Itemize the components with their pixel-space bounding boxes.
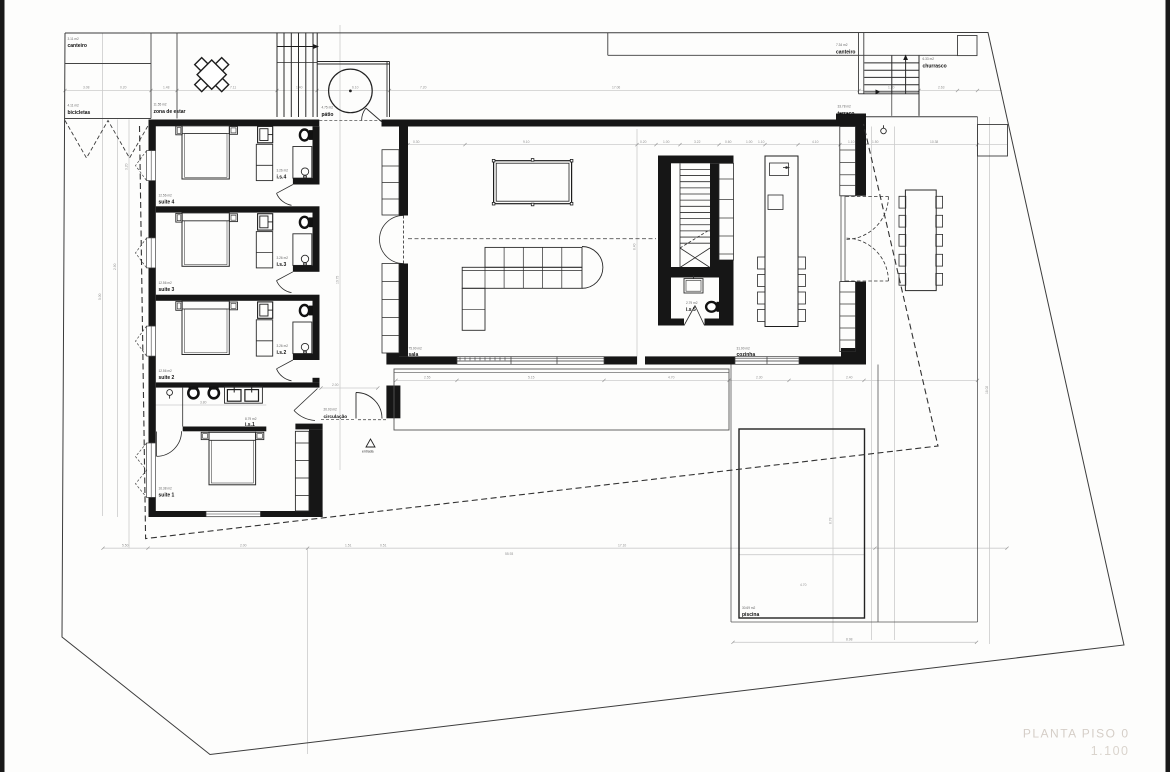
svg-text:terraço: terraço	[838, 111, 855, 117]
svg-text:16.38 m2: 16.38 m2	[159, 487, 173, 491]
svg-text:4.70: 4.70	[800, 583, 807, 587]
svg-text:7.11: 7.11	[230, 86, 236, 90]
svg-text:3.22: 3.22	[694, 140, 701, 144]
svg-text:8.79 m2: 8.79 m2	[245, 417, 257, 421]
svg-text:18.02: 18.02	[985, 386, 989, 394]
svg-text:i.s.1: i.s.1	[245, 422, 255, 428]
svg-text:suite 2: suite 2	[159, 375, 175, 381]
svg-text:canteiro: canteiro	[836, 49, 855, 55]
svg-text:2.55: 2.55	[424, 376, 431, 380]
svg-text:2.79 m2: 2.79 m2	[686, 301, 698, 305]
svg-text:17.06: 17.06	[612, 86, 620, 90]
svg-text:6.33 m2: 6.33 m2	[923, 57, 935, 61]
svg-text:canteiro: canteiro	[68, 43, 87, 49]
svg-text:7.34 m2: 7.34 m2	[836, 43, 848, 47]
svg-text:bicicletas: bicicletas	[68, 110, 91, 116]
svg-text:4.70: 4.70	[668, 376, 675, 380]
svg-text:i.s.2: i.s.2	[277, 350, 287, 356]
svg-text:4.10: 4.10	[812, 140, 819, 144]
svg-text:3.80: 3.80	[200, 400, 207, 404]
svg-text:2.40: 2.40	[846, 376, 853, 380]
svg-text:zona de estar: zona de estar	[154, 109, 186, 115]
svg-text:31.00 m2: 31.00 m2	[737, 346, 751, 350]
svg-text:2.63: 2.63	[938, 86, 945, 90]
svg-text:1.10: 1.10	[758, 140, 765, 144]
svg-text:0.20: 0.20	[640, 140, 647, 144]
svg-text:0.60: 0.60	[725, 140, 732, 144]
svg-text:0.51: 0.51	[380, 544, 387, 548]
svg-text:3.11 m2: 3.11 m2	[68, 37, 80, 41]
svg-text:12.56 m2: 12.56 m2	[159, 281, 173, 285]
svg-text:8.78: 8.78	[828, 517, 832, 524]
svg-text:1.10: 1.10	[848, 140, 855, 144]
svg-text:12.56 m2: 12.56 m2	[159, 369, 173, 373]
svg-text:sala: sala	[409, 352, 419, 358]
svg-text:2.90: 2.90	[113, 263, 117, 270]
svg-text:suite 4: suite 4	[159, 200, 175, 206]
svg-text:30.69 m2: 30.69 m2	[742, 606, 756, 610]
svg-text:cozinha: cozinha	[737, 352, 756, 358]
svg-text:1.100: 1.100	[1091, 744, 1130, 758]
svg-text:5.00: 5.00	[98, 293, 102, 300]
svg-text:7.20: 7.20	[420, 86, 427, 90]
svg-text:10.38: 10.38	[930, 140, 938, 144]
svg-text:3.26 m2: 3.26 m2	[277, 344, 289, 348]
svg-text:9.10: 9.10	[523, 140, 530, 144]
svg-text:1.50: 1.50	[872, 140, 879, 144]
svg-text:55.93: 55.93	[505, 552, 513, 556]
svg-text:suite 1: suite 1	[159, 493, 175, 499]
svg-text:3.20: 3.20	[125, 163, 129, 170]
svg-text:2.30: 2.30	[756, 376, 763, 380]
svg-text:10.75: 10.75	[336, 276, 340, 284]
svg-text:11.55 m2: 11.55 m2	[154, 103, 167, 107]
svg-text:17.10: 17.10	[618, 544, 626, 548]
svg-text:1.40: 1.40	[296, 86, 303, 90]
svg-text:suite 3: suite 3	[159, 287, 175, 293]
svg-text:4.75 m2: 4.75 m2	[322, 106, 334, 110]
svg-text:PLANTA PISO 0: PLANTA PISO 0	[1023, 727, 1130, 741]
svg-text:1.48: 1.48	[163, 86, 170, 90]
svg-text:2.00: 2.00	[240, 544, 247, 548]
svg-text:8.98: 8.98	[846, 638, 853, 642]
svg-text:1.51: 1.51	[345, 544, 352, 548]
svg-text:5.50: 5.50	[122, 544, 129, 548]
svg-text:1.00: 1.00	[663, 140, 670, 144]
svg-text:3.08: 3.08	[83, 86, 90, 90]
svg-text:circulação: circulação	[324, 414, 348, 420]
svg-text:pátio: pátio	[322, 112, 334, 118]
svg-text:2.00: 2.00	[332, 383, 339, 387]
svg-text:1.00: 1.00	[746, 140, 753, 144]
svg-text:20.03 m2: 20.03 m2	[324, 408, 338, 412]
svg-text:3.26 m2: 3.26 m2	[277, 256, 289, 260]
svg-text:churrasco: churrasco	[923, 63, 947, 69]
svg-text:0.20: 0.20	[120, 86, 127, 90]
svg-text:i.s.4: i.s.4	[277, 175, 287, 181]
svg-text:4.11 m2: 4.11 m2	[68, 104, 80, 108]
svg-text:12.56 m2: 12.56 m2	[159, 194, 173, 198]
svg-text:5.15: 5.15	[528, 376, 535, 380]
svg-text:i.s 5: i.s 5	[686, 307, 696, 313]
svg-text:0.30: 0.30	[413, 140, 420, 144]
svg-text:i.s.3: i.s.3	[277, 262, 287, 268]
svg-text:75.00 m2: 75.00 m2	[409, 346, 423, 350]
svg-text:33.78 m2: 33.78 m2	[838, 105, 852, 109]
svg-text:piscina: piscina	[742, 612, 759, 618]
svg-text:3.26 m2: 3.26 m2	[277, 169, 289, 173]
svg-text:6.10: 6.10	[352, 86, 359, 90]
svg-text:entrada: entrada	[362, 450, 374, 454]
svg-text:8.40: 8.40	[633, 243, 637, 250]
svg-text:1.20: 1.20	[888, 86, 895, 90]
